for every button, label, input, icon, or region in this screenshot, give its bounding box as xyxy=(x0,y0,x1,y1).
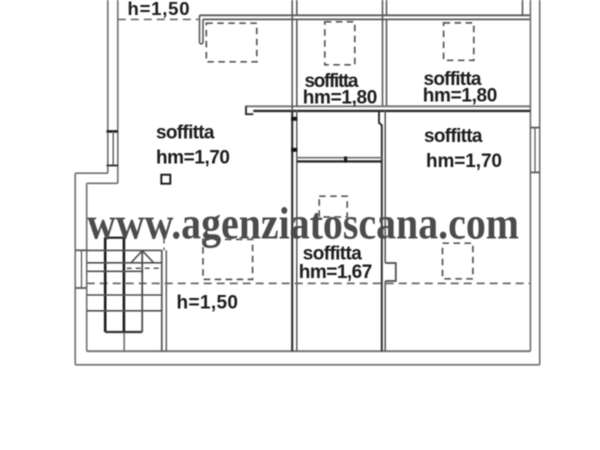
svg-text:www.agenziatoscana.com: www.agenziatoscana.com xyxy=(87,199,519,249)
svg-text:hm=1,80: hm=1,80 xyxy=(303,87,378,108)
svg-text:hm=1,67: hm=1,67 xyxy=(299,262,373,283)
svg-text:hm=1,70: hm=1,70 xyxy=(156,148,230,169)
svg-text:soffitta: soffitta xyxy=(424,126,483,147)
svg-text:hm=1,70: hm=1,70 xyxy=(426,151,502,172)
svg-text:soffitta: soffitta xyxy=(156,122,215,143)
svg-text:hm=1,80: hm=1,80 xyxy=(423,85,498,106)
svg-text:h=1,50: h=1,50 xyxy=(177,293,239,314)
svg-text:h=1,50: h=1,50 xyxy=(128,0,190,19)
